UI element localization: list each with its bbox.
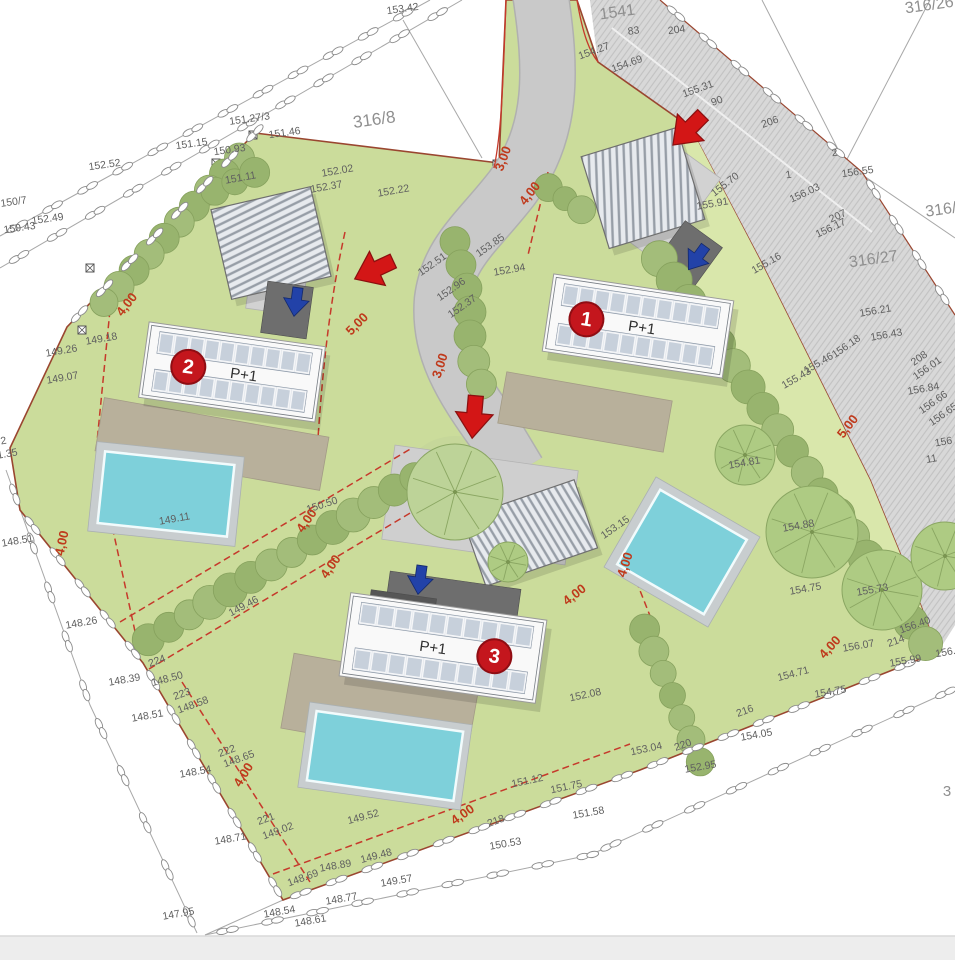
boundary-bush	[651, 819, 664, 829]
elevation-label: 148.54	[179, 763, 213, 780]
boundary-bush	[734, 781, 747, 791]
boundary-bush	[85, 180, 98, 191]
boundary-bush	[226, 103, 239, 114]
elevation-label: 83	[627, 24, 640, 38]
skylight-panel	[635, 337, 651, 358]
boundary-bush	[98, 726, 109, 739]
skylight-panel	[204, 340, 220, 361]
skylight-panel	[377, 606, 395, 627]
elevation-label: 11	[925, 452, 938, 466]
skylight-panel	[360, 604, 378, 625]
bottom-band	[0, 936, 955, 960]
bottom-band-rect	[0, 936, 955, 960]
boundary-bush	[47, 590, 57, 603]
boundary-bush	[406, 888, 419, 896]
boundary-bush	[692, 800, 705, 810]
boundary-bush	[120, 161, 133, 172]
boundary-bush	[131, 183, 144, 194]
boundary-bush	[283, 94, 296, 105]
elevation-label: 150.53	[489, 835, 523, 852]
tree	[766, 486, 858, 578]
skylight-panel	[371, 652, 389, 673]
skylight-panel	[439, 662, 457, 683]
cadastral-line	[403, 20, 482, 158]
skylight-panel	[603, 332, 619, 353]
skylight-panel	[619, 334, 635, 355]
skylight-panel	[244, 384, 260, 405]
elevation-label: 150/7	[0, 194, 28, 210]
boundary-bush	[359, 50, 372, 61]
boundary-bush	[296, 64, 309, 75]
boundary-bush	[169, 161, 182, 172]
skylight-panel	[234, 344, 250, 365]
tree	[715, 425, 775, 485]
skylight-panel	[703, 306, 719, 327]
boundary-bush	[93, 205, 106, 216]
skylight-panel	[556, 325, 572, 346]
boundary-bush	[860, 724, 873, 734]
skylight-panel	[158, 333, 174, 354]
elevation-label: 148.61	[294, 912, 328, 929]
hedge-bush	[466, 369, 496, 399]
skylight-panel	[641, 297, 657, 318]
boundary-marker	[78, 326, 86, 334]
skylight-panel	[682, 344, 698, 365]
skylight-panel	[666, 341, 682, 362]
tree	[407, 444, 503, 540]
boundary-bush	[435, 6, 448, 17]
skylight-panel	[411, 611, 429, 632]
cadastral-line	[845, 0, 930, 163]
boundary-bush	[496, 869, 509, 877]
elevation-label: 148.51	[1, 532, 35, 549]
skylight-panel	[260, 386, 276, 407]
elevation-label: 150.43	[3, 220, 37, 236]
skylight-panel	[290, 390, 306, 411]
tree	[488, 542, 528, 582]
skylight-panel	[394, 609, 412, 630]
skylight-panel	[250, 346, 266, 367]
skylight-panel	[429, 614, 447, 635]
parcel-label: 316/2	[924, 198, 955, 220]
boundary-bush	[82, 688, 92, 701]
boundary-bush	[361, 897, 374, 905]
elevation-label: 152.49	[31, 211, 65, 227]
boundary-bush	[776, 762, 789, 772]
skylight-panel	[562, 285, 578, 306]
boundary-bush	[609, 838, 622, 848]
skylight-panel	[687, 304, 703, 325]
boundary-bush	[451, 878, 464, 886]
skylight-panel	[265, 348, 281, 369]
skylight-panel	[656, 299, 672, 320]
site-plan-svg: P+11P+12P+13 153.42152.52152.49151.27/31…	[0, 0, 955, 960]
skylight-panel	[625, 295, 641, 316]
skylight-panel	[295, 352, 311, 373]
elevation-label: 153.42	[386, 1, 420, 17]
parcel-label: 316/8	[352, 107, 397, 132]
boundary-bush	[64, 639, 74, 652]
elevation-label: 148.39	[108, 671, 142, 688]
boundary-bush	[331, 45, 344, 56]
skylight-panel	[446, 616, 464, 637]
boundary-bush	[17, 249, 30, 260]
parcel-label: 316/26	[904, 0, 955, 17]
elevation-label: 149.57	[380, 872, 414, 889]
skylight-panel	[508, 671, 526, 692]
skylight-panel	[153, 371, 169, 392]
skylight-panel	[275, 388, 291, 409]
skylight-panel	[422, 659, 440, 680]
skylight-panel	[388, 654, 406, 675]
skylight-panel	[609, 292, 625, 313]
boundary-bush	[155, 141, 168, 152]
boundary-bush	[164, 868, 175, 881]
boundary-bush	[55, 227, 68, 238]
skylight-panel	[697, 346, 713, 367]
skylight-panel	[219, 342, 235, 363]
boundary-bush	[261, 84, 274, 95]
parcel-label: 3	[943, 783, 951, 800]
boundary-bush	[902, 705, 915, 715]
boundary-marker	[86, 264, 94, 272]
skylight-panel	[515, 626, 533, 647]
skylight-panel	[214, 379, 230, 400]
skylight-panel	[650, 339, 666, 360]
elevation-label: 204	[667, 23, 686, 37]
skylight-panel	[199, 377, 215, 398]
skylight-panel	[229, 382, 245, 403]
site-plan-canvas: P+11P+12P+13 153.42152.52152.49151.27/31…	[0, 0, 955, 960]
skylight-panel	[405, 657, 423, 678]
boundary-bush	[366, 26, 379, 37]
skylight-panel	[457, 664, 475, 685]
boundary-bush	[586, 850, 599, 858]
elevation-label: 151.58	[572, 804, 606, 821]
boundary-bush	[142, 821, 153, 834]
boundary-bush	[50, 199, 63, 210]
elevation-label: 2	[0, 435, 8, 448]
boundary-bush	[397, 28, 410, 39]
boundary-bush	[120, 773, 131, 786]
garage-ramp	[261, 281, 314, 339]
boundary-bush	[226, 925, 239, 933]
skylight-panel	[280, 350, 296, 371]
boundary-bush	[818, 743, 831, 753]
skylight-panel	[463, 618, 481, 639]
elevation-label: 148.71	[214, 830, 248, 847]
elevation-label: 148.51	[131, 707, 165, 724]
boundary-bush	[541, 860, 554, 868]
hedge-bush	[568, 196, 596, 224]
boundary-bush	[191, 122, 204, 133]
skylight-panel	[353, 649, 371, 670]
skylight-panel	[672, 302, 688, 323]
boundary-bush	[321, 72, 334, 83]
elevation-label: 148.26	[65, 614, 99, 631]
